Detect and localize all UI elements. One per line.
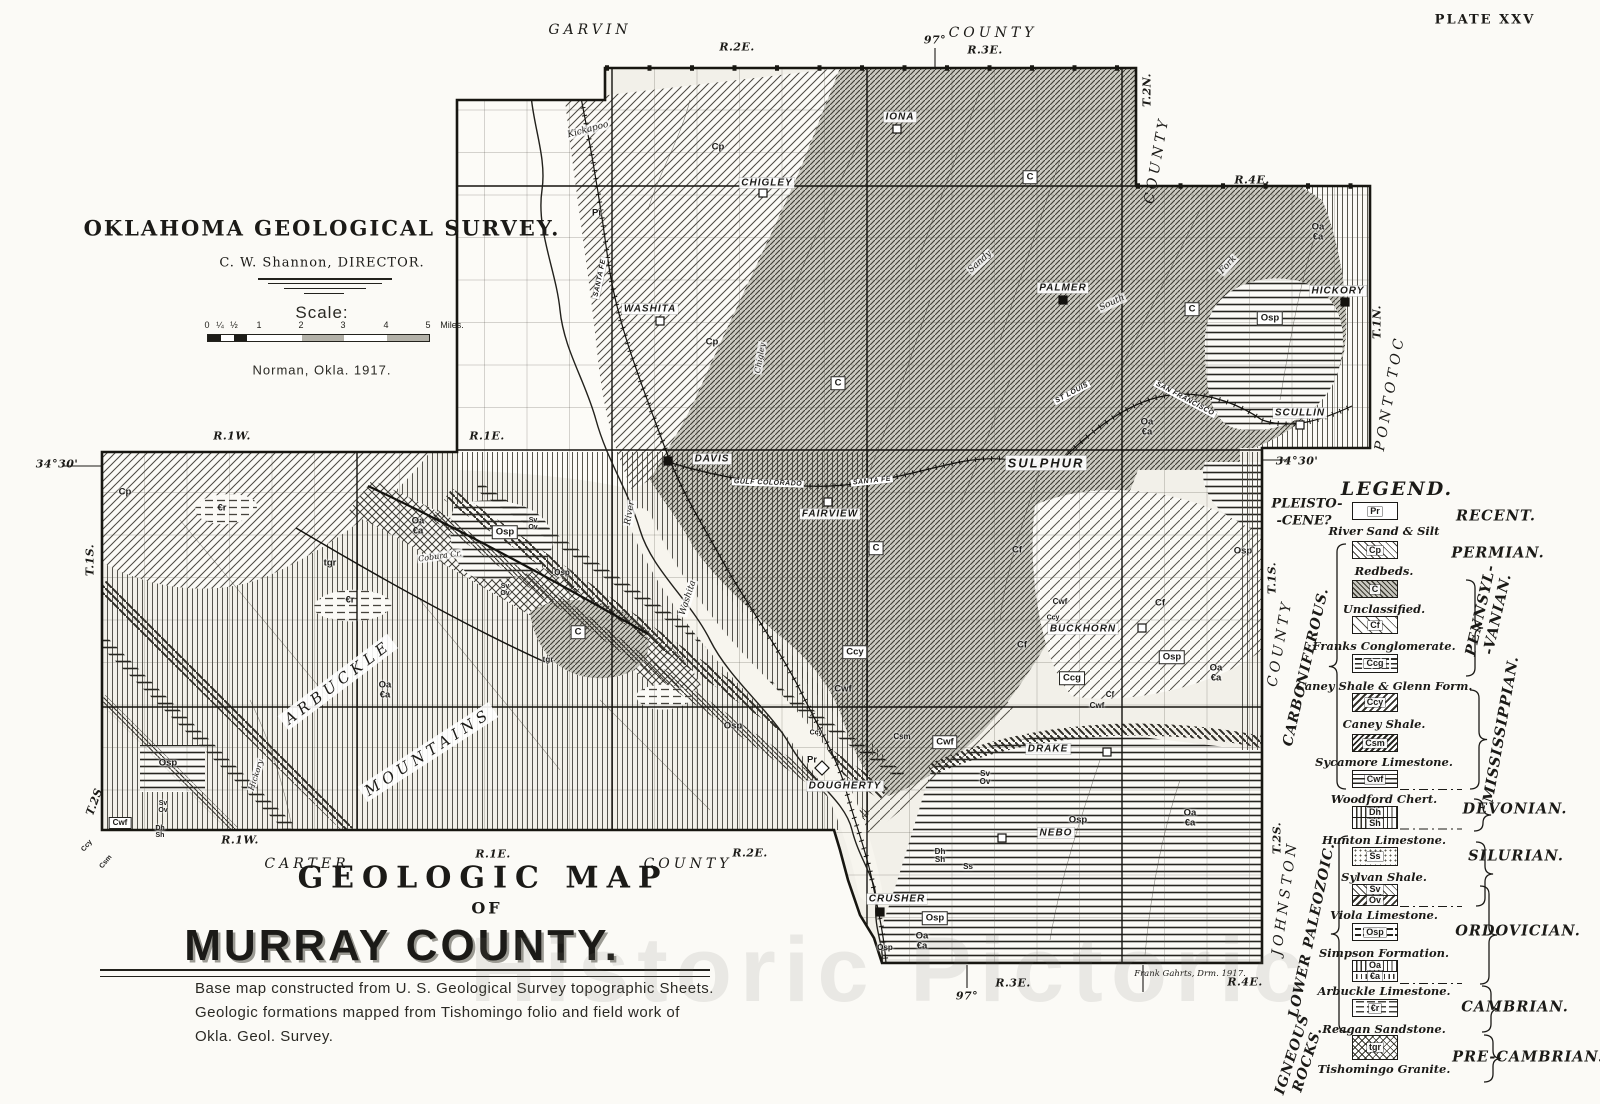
map-title-line1: GEOLOGIC MAP [298,861,669,896]
formation-code: Oa€a [379,681,392,700]
legend-period: RECENT. [1456,508,1536,525]
caption-line2: Geologic formations mapped from Tishomin… [195,1004,680,1021]
swatch-pattern: Oa [1353,961,1397,971]
legend-swatch-tgr: tgr [1352,1035,1398,1060]
legend-formation-name: Redbeds. [1355,564,1414,578]
scale-segment [247,335,260,341]
formation-code: SvOv [980,770,991,786]
legend-formation-name: Woodford Chert. [1331,792,1437,806]
swatch-pattern: Ccg [1353,655,1397,672]
legend-swatch-Cp: Cp [1352,541,1398,559]
formation-code: DhSh [155,825,164,839]
formation-code: Ss [1367,852,1382,861]
formation-code: Cp [119,487,132,497]
formation-code: Cf [1155,598,1165,608]
flourish-line [258,278,392,280]
formation-code: SvOv [528,517,537,531]
formation-code: Osp [554,569,570,577]
swatch-pattern: C [1353,581,1397,597]
legend-swatch-Oa-€a: Oa€a [1352,960,1398,982]
director-line: C. W. Shannon, DIRECTOR. [219,256,424,271]
place-date: Norman, Okla. 1917. [253,363,392,378]
legend-period: CAMBRIAN. [1461,999,1569,1016]
scale-segment [221,335,234,341]
formation-code: Sh [1367,819,1383,828]
scale-tick: 2 [298,320,303,330]
swatch-pattern: Cwf [1353,771,1397,787]
formation-code: Osp [159,758,177,768]
swatch-pattern: Cf [1353,617,1397,633]
formation-code: Cp [706,337,719,347]
swatch-pattern: Dh [1353,807,1397,817]
legend-period: SILURIAN. [1468,848,1564,865]
town-label: WASHITA [622,304,678,315]
town-label: DOUGHERTY [807,781,884,792]
legend-swatch-Ccy: Ccy [1352,693,1398,712]
formation-code: Cf [1012,545,1022,555]
formation-code: C [571,625,586,639]
grid-label: R.3E. [995,977,1030,990]
formation-code: Cwf [834,684,851,694]
scale-segment [260,335,302,341]
map-sheet: PLATE XXV OKLAHOMA GEOLOGICAL SURVEY. C.… [0,0,1600,1104]
flourish-line [268,283,382,284]
formation-code: Pr [592,208,602,218]
formation-code: Osp [1257,311,1283,325]
county-name: CARTER [264,856,349,872]
swatch-pattern: Csm [1353,735,1397,751]
legend-swatch-Dh-Sh: DhSh [1352,806,1398,829]
legend-formation-name: Caney Shale. [1343,717,1426,731]
town-label: SCULLIN [1273,408,1327,419]
formation-code: C [1185,302,1200,316]
formation-code: Cf [1106,691,1114,699]
legend-formation-name: Franks Conglomerate. [1312,639,1455,653]
grid-label: T.1N. [1371,305,1384,339]
town-label: PALMER [1037,283,1088,294]
formation-code: Oa€a [1141,418,1154,437]
grid-label: T.2N. [1141,73,1154,107]
map-title-line2: OF [471,899,502,918]
formation-code: SvOv [158,800,167,814]
formation-code: Pr [807,755,817,765]
caption-line3: Okla. Geol. Survey. [195,1028,333,1045]
scale-tick: ¼ [216,320,224,330]
grid-label: 97° [924,34,946,47]
legend-swatch-C: C [1352,580,1398,598]
formation-code: Oa€a [412,517,425,536]
grid-label: T.1S. [84,544,97,576]
legend-formation-name: Arbuckle Limestone. [1317,984,1450,998]
formation-code: Ov [1367,896,1383,905]
formation-code: Cwf [1365,775,1386,784]
scale-bar-graphic [207,334,430,342]
formation-code: Ccg [1364,659,1385,668]
formation-code: Cwf [932,735,957,749]
town-label: HICKORY [1310,286,1367,297]
formation-code: Osp [1159,650,1185,664]
formation-code: Osp [877,944,893,952]
scale-segment [208,335,221,341]
legend-formation-name: Viola Limestone. [1330,908,1438,922]
formation-code: Osp [1069,815,1087,825]
formation-code: Cf [1017,640,1027,650]
formation-code: Oa [1367,961,1383,970]
formation-code: Dh [1367,808,1383,817]
grid-label: R.3E. [967,44,1002,57]
legend-swatch-Sv-Ov: SvOv [1352,884,1398,906]
swatch-pattern: €r [1353,1000,1397,1016]
legend-swatch-Csm: Csm [1352,734,1398,752]
formation-code: Csm [893,733,910,741]
scale-segment [344,335,387,341]
county-name: COUNTY [949,25,1038,41]
swatch-pattern: Ov [1353,895,1397,906]
scale-segment [302,335,344,341]
grid-label: R.4E. [1227,976,1262,989]
formation-code: €a [1368,972,1382,981]
town-label: DRAKE [1026,744,1071,755]
formation-code: Ccy [1365,698,1386,707]
scale-segment [387,335,429,341]
legend-period: DEVONIAN. [1463,801,1568,818]
formation-code: Ccy [1047,615,1060,622]
county-name: COUNTY [644,856,733,872]
formation-code: SvOv [500,583,509,597]
map-title-line3: MURRAY COUNTY. [184,921,620,971]
legend-formation-name: Tishomingo Granite. [1318,1062,1451,1076]
flourish-line [304,293,344,294]
grid-label: R.2E. [719,41,754,54]
agency-title: OKLAHOMA GEOLOGICAL SURVEY. [84,216,561,241]
formation-code: Ccy [842,645,867,659]
plate-number: PLATE XXV [1435,13,1536,28]
grid-label: 34°30' [36,458,78,471]
legend-period: ORDOVICIAN. [1455,923,1581,940]
scale-unit: Miles. [440,320,464,330]
swatch-pattern: Sv [1353,885,1397,895]
legend-swatch-€r: €r [1352,999,1398,1017]
legend-formation-name: Reagan Sandstone. [1322,1022,1445,1036]
scale-tick: ½ [230,320,238,330]
legend-era-pleistocene: PLEISTO- [1271,497,1342,512]
formation-code: €r [1369,1004,1382,1013]
swatch-pattern: Ccy [1353,694,1397,711]
swatch-pattern: Cp [1353,542,1397,558]
flourish-line [284,288,366,289]
legend-formation-name: Unclassified. [1343,602,1425,616]
legend-formation-name: Sylvan Shale. [1341,870,1427,884]
legend-formation-name: Sycamore Limestone. [1315,755,1453,769]
formation-code: tgr [1367,1043,1383,1052]
title-rule [100,969,710,977]
swatch-pattern: Osp [1353,924,1397,940]
town-label: BUCKHORN [1048,624,1118,635]
formation-code: Cwf [1053,598,1068,606]
scale-segment [234,335,247,341]
swatch-pattern: tgr [1353,1036,1397,1059]
scale-tick: 5 [425,320,430,330]
town-label: NEBO [1038,828,1075,839]
formation-code: tgr [543,656,554,664]
grid-label: R.1W. [221,834,259,847]
town-label: CHIGLEY [739,178,794,189]
legend-swatch-Pr: Pr [1352,502,1398,520]
formation-code: Cwf [109,817,132,829]
formation-code: C [1370,585,1381,594]
formation-code: Osp [922,911,948,925]
legend-formation-name: Caney Shale & Glenn Form. [1296,679,1473,693]
formation-code: C [1023,170,1038,184]
formation-code: Pr [1368,507,1382,516]
formation-code: Cp [1367,546,1383,555]
swatch-pattern: €a [1353,971,1397,982]
scale-tick: 3 [340,320,345,330]
grid-label: T.1S. [1266,562,1279,594]
grid-label: R.1E. [469,430,504,443]
caption-line1: Base map constructed from U. S. Geologic… [195,980,714,997]
legend-swatch-Cwf: Cwf [1352,770,1398,788]
legend-period: PERMIAN. [1451,545,1544,562]
grid-label: 97° [956,990,978,1003]
legend-formation-name: Hunton Limestone. [1322,833,1446,847]
town-label: FAIRVIEW [800,509,860,520]
formation-code: Oa€a [1184,809,1197,828]
formation-code: Ss [963,863,973,871]
legend-swatch-Ccg: Ccg [1352,654,1398,673]
swatch-pattern: Ss [1353,848,1397,865]
county-name: GARVIN [548,22,631,38]
legend-swatch-Cf: Cf [1352,616,1398,634]
formation-code: Osp [724,721,742,731]
scale-tick: 0 [204,320,209,330]
formation-code: €r [218,503,227,513]
grid-label: R.4E. [1234,174,1269,187]
scale-tick: 1 [256,320,261,330]
formation-code: Ccy [810,730,823,737]
swatch-pattern: Pr [1353,503,1397,519]
formation-code: DhSh [935,848,946,864]
legend-period: PRE-CAMBRIAN. [1452,1049,1600,1066]
legend-swatch-Osp: Osp [1352,923,1398,941]
formation-code: C [869,541,884,555]
formation-code: €r [346,595,355,605]
town-label: SULPHUR [1006,456,1087,471]
formation-code: Oa€a [1210,664,1223,683]
town-label: DAVIS [693,454,732,465]
formation-code: C [831,376,846,390]
formation-code: Oa€a [916,932,929,951]
scale-tick: 4 [383,320,388,330]
grid-label: R.1E. [475,848,510,861]
swatch-pattern: Sh [1353,817,1397,828]
town-label: CRUSHER [867,894,927,905]
legend-formation-name: River Sand & Silt [1329,524,1440,538]
formation-code: Oa€a [1312,223,1325,242]
grid-label: 34°30' [1276,455,1318,468]
grid-label: T.2S. [1271,822,1284,854]
grid-label: R.2E. [732,847,767,860]
formation-code: Osp [1234,546,1252,556]
formation-code: Cp [712,142,725,152]
formation-code: Cwf [1090,702,1105,710]
formation-code: Csm [1363,739,1387,748]
legend-era-pleistocene: -CENE? [1276,514,1331,529]
legend-formation-name: Simpson Formation. [1319,946,1449,960]
formation-code: Osp [492,525,518,539]
town-label: IONA [884,112,917,123]
legend-swatch-Ss: Ss [1352,847,1398,866]
formation-code: Ccg [1059,671,1085,685]
formation-code: Osp [1364,928,1386,937]
formation-code: tgr [324,558,337,568]
formation-code: Sv [1367,885,1382,894]
grid-label: R.1W. [213,430,251,443]
formation-code: Cf [1368,621,1382,630]
legend-title: LEGEND. [1341,478,1453,500]
